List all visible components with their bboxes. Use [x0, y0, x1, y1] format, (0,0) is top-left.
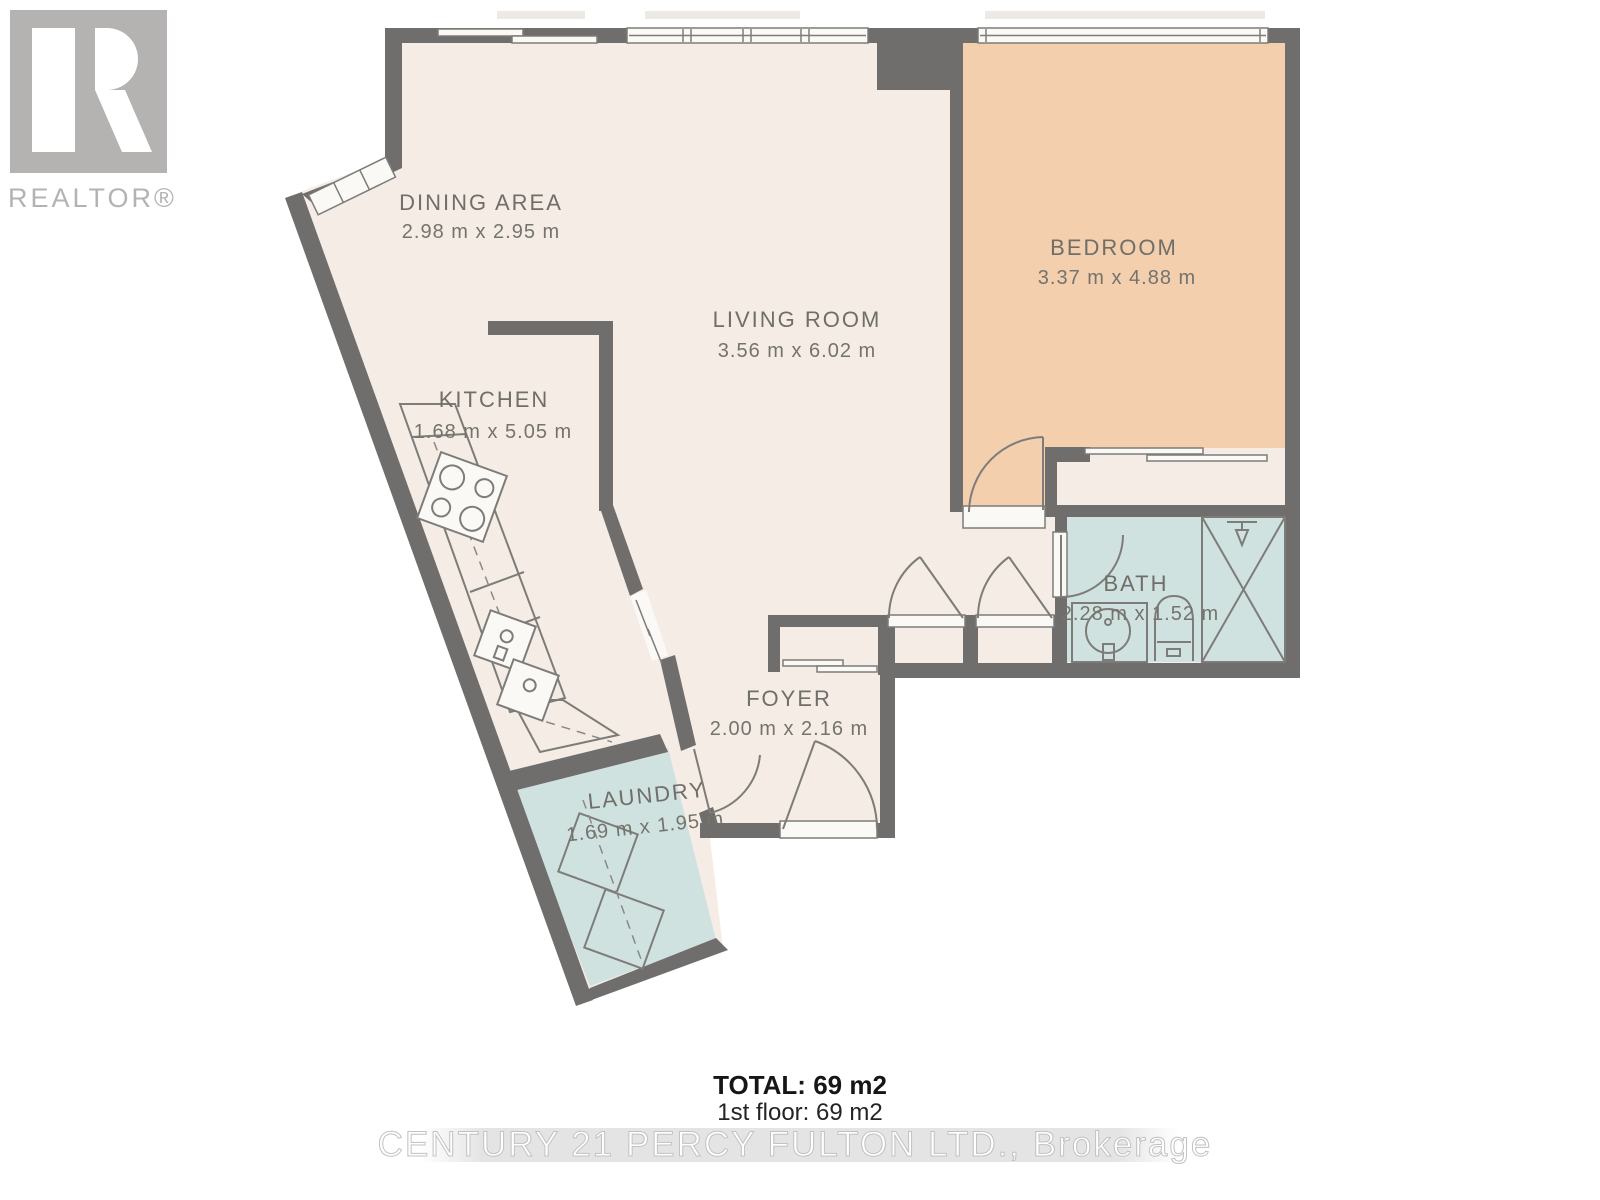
- bedroom-dims: 3.37 m x 4.88 m: [1038, 267, 1196, 289]
- bath-name: BATH: [1103, 571, 1168, 596]
- first-floor-area-text: 1st floor: 69 m2: [717, 1099, 882, 1126]
- bedroom-name: BEDROOM: [1050, 235, 1178, 260]
- dining-dims: 2.98 m x 2.95 m: [402, 221, 560, 243]
- dining-name: DINING AREA: [399, 190, 563, 215]
- realtor-logo: REALTOR®: [8, 10, 177, 213]
- floorplan-page: DINING AREA 2.98 m x 2.95 m LIVING ROOM …: [0, 0, 1600, 1200]
- sill-closet-1: [888, 615, 965, 627]
- kitchen-name: KITCHEN: [439, 387, 550, 412]
- foyer-dims: 2.00 m x 2.16 m: [710, 718, 868, 740]
- wall-kitchen-divider-v: [599, 321, 613, 511]
- sill-closet-2: [976, 615, 1054, 627]
- floorplan-canvas: DINING AREA 2.98 m x 2.95 m LIVING ROOM …: [0, 0, 1600, 1200]
- footer: TOTAL: 69 m2 1st floor: 69 m2 CENTURY 21…: [378, 1070, 1213, 1164]
- bath-dims: 2.28 m x 1.52 m: [1061, 603, 1219, 625]
- wall-foyer-closet-left: [768, 615, 780, 672]
- wall-kitchen-divider-h: [488, 321, 613, 335]
- living-name: LIVING ROOM: [713, 307, 882, 332]
- foyer-name: FOYER: [746, 686, 832, 711]
- wall-left-upper: [385, 28, 402, 168]
- wall-foyer-right: [880, 627, 895, 838]
- wall-foyer-closet-top: [768, 615, 890, 627]
- sill-entry-door: [780, 821, 877, 838]
- balcony-strips: [497, 11, 1265, 19]
- kitchen-dims: 1.68 m x 5.05 m: [414, 421, 572, 443]
- realtor-logo-label: REALTOR®: [8, 183, 177, 213]
- wall-bottom-right: [880, 663, 1300, 678]
- window-bedroom: [978, 28, 1268, 43]
- wall-closet-bottom: [1045, 505, 1285, 517]
- wall-right: [1285, 28, 1300, 678]
- wall-bedroom-left: [950, 43, 963, 512]
- brokerage-watermark: CENTURY 21 PERCY FULTON LTD., Brokerage: [378, 1125, 1213, 1164]
- living-dims: 3.56 m x 6.02 m: [718, 340, 876, 362]
- total-area-text: TOTAL: 69 m2: [713, 1070, 887, 1100]
- sill-bedroom-door: [963, 506, 1045, 528]
- window-living: [627, 28, 868, 43]
